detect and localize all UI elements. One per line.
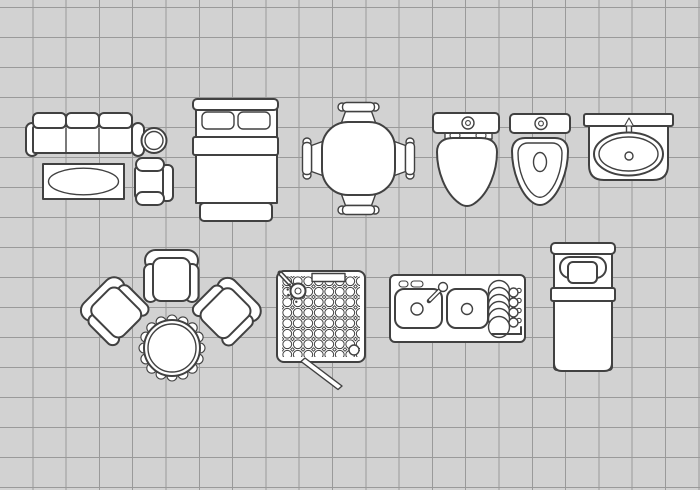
armchair-arm-top xyxy=(136,158,164,171)
armchair-arm-bottom xyxy=(136,192,164,205)
bed-footer xyxy=(200,203,272,221)
dining-table-top xyxy=(322,122,395,195)
single-bed xyxy=(551,243,615,371)
armchair-small xyxy=(135,158,173,205)
coffee-table-oval xyxy=(43,164,124,199)
toilet-lid xyxy=(437,138,497,206)
faucet-ball xyxy=(439,283,448,292)
tap-handle xyxy=(399,281,408,287)
sofa-back-cushion xyxy=(66,113,99,128)
tap-handle xyxy=(411,281,423,287)
toilet-bowl-drain xyxy=(534,153,547,172)
dining-chair-south xyxy=(338,195,379,215)
sofa-back-cushion xyxy=(33,113,66,128)
bed-quilt xyxy=(196,155,277,203)
shower-shelf xyxy=(312,274,345,282)
shower-cabin xyxy=(277,271,365,390)
toilet-open xyxy=(510,114,570,205)
drain-icon xyxy=(625,152,633,160)
toilet-closed xyxy=(433,113,499,206)
lounge-chair-top xyxy=(144,250,199,302)
bed-headboard xyxy=(193,99,278,110)
drain-icon xyxy=(411,303,423,315)
table-scalloped xyxy=(139,315,205,381)
drain-icon xyxy=(349,345,359,355)
dining-chair-east xyxy=(395,138,415,179)
lounge-chair-left xyxy=(76,273,151,348)
bed-pillow xyxy=(202,112,234,129)
sofa-back-cushion xyxy=(99,113,132,128)
drain-icon xyxy=(462,304,473,315)
bed-pillow xyxy=(238,112,270,129)
side-table-round xyxy=(142,128,167,153)
dining-set xyxy=(303,103,415,215)
lounge-set xyxy=(76,250,266,381)
double-bed xyxy=(193,99,278,221)
sofa-seat xyxy=(33,126,132,153)
sofa-three-seat xyxy=(26,113,144,156)
bed-pillow xyxy=(568,262,597,283)
bed-sheet-band xyxy=(193,137,278,155)
washbasin xyxy=(584,114,673,180)
floor-plan-drawing xyxy=(0,0,700,490)
kitchen-sink-counter xyxy=(390,275,525,342)
dining-chair-west xyxy=(303,138,323,179)
bed-blanket-striped xyxy=(554,300,612,371)
floor-plan-icon-sheet xyxy=(0,0,700,490)
dining-chair-north xyxy=(338,103,379,123)
bed-headboard xyxy=(551,243,615,254)
dish-rack-plates xyxy=(489,281,510,338)
bed-sheet-band xyxy=(551,288,615,301)
